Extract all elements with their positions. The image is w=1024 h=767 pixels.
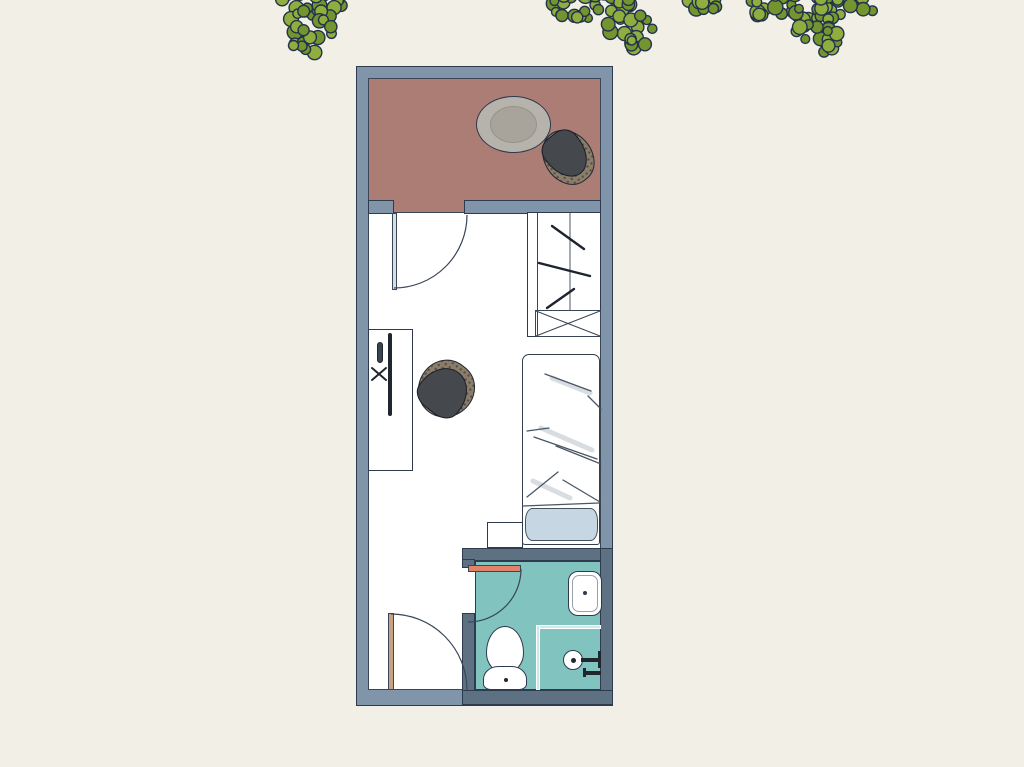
foliage-leaf-blob <box>801 35 810 44</box>
foliage-leaf-blob <box>616 15 625 24</box>
bathroom-door <box>468 565 521 572</box>
foliage-leaf-blob <box>590 0 600 10</box>
monitor-mount <box>377 342 383 363</box>
foliage-leaf-blob <box>830 27 844 41</box>
foliage-leaf-blob <box>757 3 770 16</box>
foliage-leaf-blob <box>276 0 289 6</box>
foliage-leaf-blob <box>558 0 570 2</box>
foliage-leaf-blob <box>297 37 309 49</box>
nightstand <box>487 522 523 548</box>
foliage-leaf-blob <box>293 9 302 18</box>
foliage-leaf-blob <box>622 0 634 5</box>
balcony-door <box>392 213 397 290</box>
foliage-leaf-blob <box>315 4 326 15</box>
foliage-leaf-blob <box>325 21 337 33</box>
foliage-leaf-blob <box>300 36 309 45</box>
shower-handle-cap <box>583 668 586 677</box>
foliage-leaf-blob <box>281 0 293 1</box>
foliage-leaf-blob <box>324 10 336 22</box>
foliage-leaf-blob <box>832 0 844 7</box>
foliage-leaf-blob <box>800 22 810 32</box>
foliage-leaf-blob <box>787 0 796 9</box>
foliage-leaf-blob <box>568 9 581 22</box>
foliage-leaf-blob <box>787 4 801 18</box>
foliage-leaf-blob <box>832 0 843 5</box>
foliage-leaf-blob <box>823 0 834 3</box>
foliage-leaf-blob <box>593 5 603 15</box>
toilet-tank <box>483 666 527 690</box>
foliage-leaf-blob <box>795 12 810 27</box>
sink-drain <box>583 591 587 595</box>
foliage-leaf-blob <box>771 0 780 1</box>
foliage-leaf-blob <box>815 2 828 15</box>
foliage-leaf-blob <box>821 39 833 51</box>
sink <box>568 571 602 616</box>
foliage-leaf-blob <box>616 3 629 16</box>
foliage-leaf-blob <box>751 8 765 22</box>
foliage-leaf-blob <box>557 0 570 9</box>
foliage-leaf-blob <box>825 42 838 55</box>
foliage-leaf-blob <box>335 0 347 11</box>
foliage-leaf-blob <box>578 0 593 3</box>
foliage-leaf-blob <box>625 39 637 51</box>
foliage-leaf-blob <box>623 0 637 12</box>
foliage-leaf-blob <box>857 3 870 16</box>
pillow <box>525 508 598 541</box>
foliage-leaf-blob <box>750 5 765 20</box>
foliage-leaf-blob <box>625 36 640 51</box>
foliage-leaf-blob <box>815 0 828 5</box>
foliage-leaf-blob <box>627 41 641 55</box>
foliage-leaf-blob <box>844 0 858 13</box>
foliage-leaf-blob <box>642 16 651 25</box>
floor-plan-canvas <box>0 0 1024 767</box>
foliage-leaf-blob <box>709 0 721 6</box>
foliage-leaf-blob <box>311 0 321 2</box>
foliage-leaf-blob <box>755 9 767 21</box>
foliage-leaf-blob <box>319 0 330 1</box>
foliage-leaf-blob <box>300 44 310 54</box>
foliage-leaf-blob <box>556 10 568 22</box>
foliage-leaf-blob <box>823 21 835 33</box>
foliage-leaf-blob <box>610 3 622 15</box>
foliage-leaf-blob <box>792 12 801 21</box>
foliage-leaf-blob <box>289 1 303 15</box>
foliage-leaf-blob <box>298 25 309 36</box>
foliage-leaf-blob <box>826 4 837 15</box>
foliage-leaf-blob <box>566 0 576 3</box>
foliage-leaf-blob <box>787 0 802 2</box>
shower-arm-bracket <box>598 651 601 668</box>
foliage-leaf-blob <box>819 0 833 14</box>
foliage-leaf-blob <box>823 27 832 36</box>
foliage-leaf-blob <box>605 0 620 3</box>
foliage-leaf-blob <box>824 30 836 42</box>
foliage-leaf-blob <box>289 41 299 51</box>
foliage-leaf-blob <box>823 14 833 24</box>
foliage-leaf-blob <box>689 1 704 16</box>
foliage-leaf-blob <box>315 0 324 1</box>
foliage-leaf-blob <box>606 5 617 16</box>
foliage-leaf-blob <box>699 0 710 5</box>
foliage-leaf-blob <box>632 21 644 33</box>
foliage-leaf-blob <box>833 38 842 47</box>
foliage-leaf-blob <box>315 5 328 18</box>
shower-drain <box>563 650 583 670</box>
foliage-leaf-blob <box>819 47 829 57</box>
tree-foliage <box>276 0 878 60</box>
foliage-leaf-blob <box>308 11 317 20</box>
foliage-leaf-blob <box>795 4 804 13</box>
foliage-leaf-blob <box>868 6 878 16</box>
foliage-leaf-blob <box>812 3 824 15</box>
foliage-leaf-blob <box>618 27 632 41</box>
foliage-leaf-blob <box>622 0 634 10</box>
wardrobe-shelf-box <box>535 310 601 337</box>
foliage-leaf-blob <box>835 10 845 20</box>
foliage-leaf-blob <box>297 41 307 51</box>
bathroom-wall-top <box>462 548 613 561</box>
foliage-leaf-blob <box>708 4 718 14</box>
foliage-leaf-blob <box>849 0 858 9</box>
foliage-leaf-blob <box>768 0 783 15</box>
foliage-leaf-blob <box>625 34 636 45</box>
foliage-leaf-blob <box>556 10 566 20</box>
foliage-leaf-blob <box>802 12 815 25</box>
foliage-leaf-blob <box>629 31 643 45</box>
foliage-leaf-blob <box>332 0 344 5</box>
foliage-leaf-blob <box>627 36 636 45</box>
foliage-leaf-blob <box>311 31 325 45</box>
foliage-leaf-blob <box>698 4 709 15</box>
foliage-leaf-blob <box>822 39 835 52</box>
shower-handle <box>585 671 601 675</box>
foliage-leaf-blob <box>770 1 780 11</box>
bathroom-wall-bottom <box>462 690 613 705</box>
foliage-leaf-blob <box>774 0 789 4</box>
foliage-leaf-blob <box>314 12 324 22</box>
foliage-leaf-blob <box>791 26 802 37</box>
foliage-leaf-blob <box>314 14 326 26</box>
foliage-leaf-blob <box>753 8 765 20</box>
foliage-leaf-blob <box>624 13 638 27</box>
foliage-leaf-blob <box>613 10 626 23</box>
foliage-leaf-blob <box>688 1 697 10</box>
foliage-leaf-blob <box>580 6 590 16</box>
foliage-leaf-blob <box>815 11 825 21</box>
foliage-leaf-blob <box>604 26 612 34</box>
balcony-table-inner-ring <box>490 106 537 143</box>
foliage-leaf-blob <box>312 0 327 13</box>
shower-glass-panel-side <box>536 625 540 690</box>
foliage-leaf-blob <box>327 1 341 15</box>
foliage-leaf-blob <box>746 0 756 6</box>
toilet-flush-button <box>504 678 508 682</box>
foliage-leaf-blob <box>298 5 310 17</box>
foliage-leaf-blob <box>588 0 602 2</box>
foliage-leaf-blob <box>302 3 312 13</box>
foliage-leaf-blob <box>552 7 561 16</box>
foliage-leaf-blob <box>601 17 615 31</box>
foliage-leaf-blob <box>287 24 302 39</box>
foliage-leaf-blob <box>648 24 657 33</box>
foliage-leaf-blob <box>811 0 825 4</box>
foliage-leaf-blob <box>312 2 327 17</box>
foliage-leaf-blob <box>821 23 835 37</box>
foliage-leaf-blob <box>828 0 840 4</box>
foliage-leaf-blob <box>307 45 321 59</box>
foliage-leaf-blob <box>310 0 323 3</box>
foliage-leaf-blob <box>638 38 651 51</box>
foliage-leaf-blob <box>284 12 299 27</box>
balcony-partition-wall-left <box>368 200 394 214</box>
foliage-leaf-blob <box>635 10 646 21</box>
foliage-leaf-blob <box>696 0 709 9</box>
foliage-leaf-blob <box>304 31 317 44</box>
foliage-leaf-blob <box>575 11 586 22</box>
foliage-leaf-blob <box>614 0 625 8</box>
foliage-leaf-blob <box>789 6 803 20</box>
foliage-leaf-blob <box>811 21 823 33</box>
foliage-leaf-blob <box>546 0 561 11</box>
foliage-leaf-blob <box>803 20 813 30</box>
shower-drain-center <box>571 658 576 663</box>
foliage-leaf-blob <box>577 0 586 1</box>
entry-door <box>388 613 394 690</box>
foliage-leaf-blob <box>603 25 618 40</box>
foliage-leaf-blob <box>752 0 762 7</box>
foliage-leaf-blob <box>291 21 303 33</box>
bathroom-wall-right <box>600 548 613 705</box>
foliage-leaf-blob <box>319 15 329 25</box>
foliage-leaf-blob <box>776 8 787 19</box>
foliage-leaf-blob <box>334 0 343 6</box>
foliage-leaf-blob <box>812 13 822 23</box>
foliage-leaf-blob <box>550 0 559 6</box>
foliage-leaf-blob <box>793 20 808 35</box>
foliage-leaf-blob <box>302 5 314 17</box>
foliage-leaf-blob <box>822 33 836 47</box>
foliage-leaf-blob <box>856 0 869 4</box>
foliage-leaf-blob <box>327 29 337 39</box>
foliage-leaf-blob <box>827 12 839 24</box>
foliage-leaf-blob <box>620 0 634 12</box>
foliage-leaf-blob <box>572 12 583 23</box>
foliage-leaf-blob <box>312 14 326 28</box>
foliage-leaf-blob <box>682 0 695 7</box>
foliage-leaf-blob <box>289 38 300 49</box>
foliage-leaf-blob <box>584 14 593 23</box>
monitor <box>388 333 392 416</box>
foliage-leaf-blob <box>710 1 721 12</box>
foliage-leaf-blob <box>692 0 706 9</box>
shower-glass-panel-top <box>536 625 601 629</box>
foliage-leaf-blob <box>813 32 827 46</box>
